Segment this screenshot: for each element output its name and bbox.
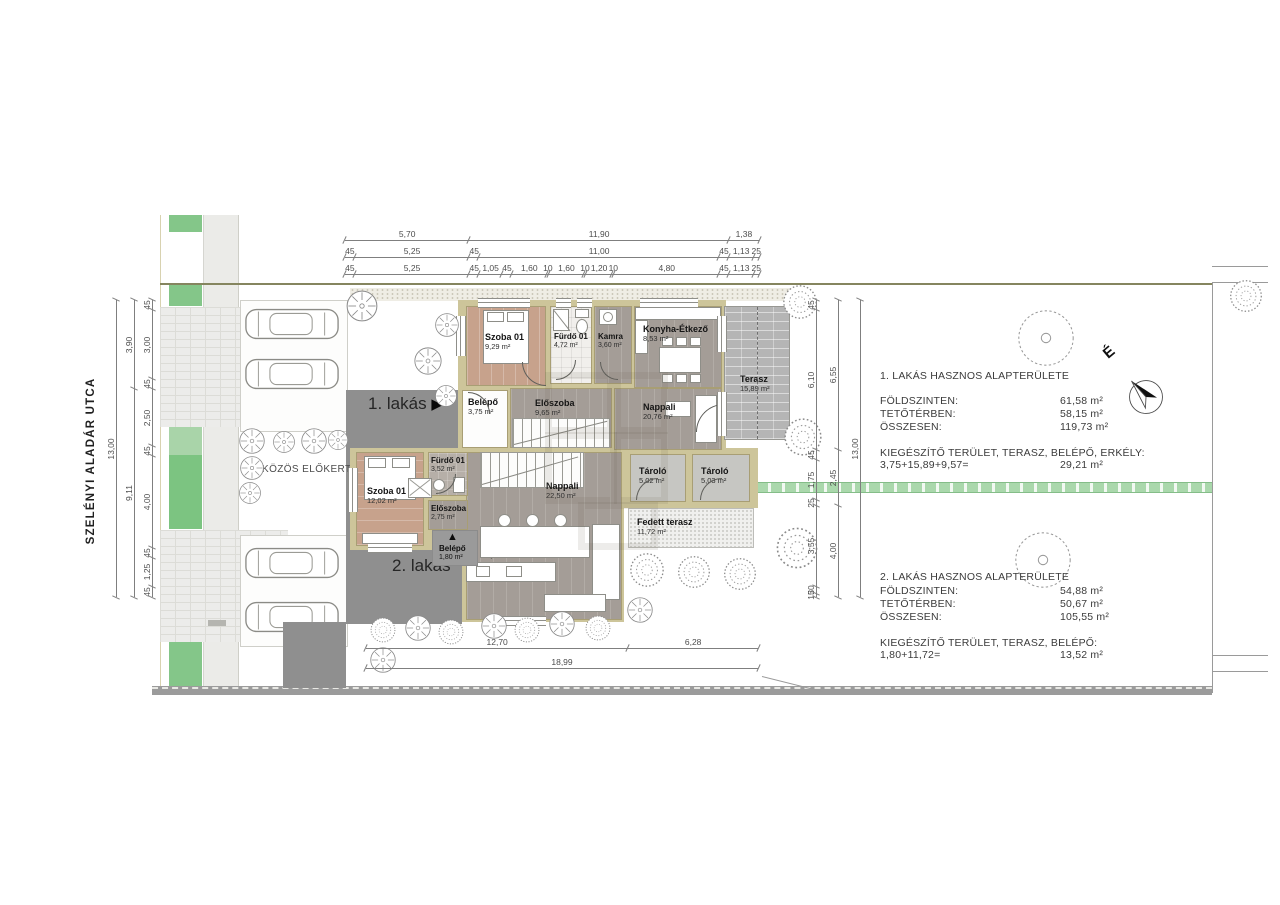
north-label: É <box>1100 343 1119 362</box>
dim-segment: 3,55 <box>804 506 817 587</box>
bush-icon <box>676 554 712 590</box>
window <box>577 298 592 308</box>
dim-segment: 45 <box>140 587 153 597</box>
boundary-tick <box>1212 266 1268 267</box>
grass-strip <box>169 427 202 455</box>
tree-icon <box>626 596 654 624</box>
sidewalk-mark <box>208 620 226 626</box>
washing-machine-door <box>603 312 613 322</box>
dim-segment: 6,55 <box>826 300 839 450</box>
bar-stool <box>498 514 511 527</box>
driveway <box>283 622 346 688</box>
north-arrow-icon <box>1120 371 1172 423</box>
pillow <box>507 312 524 322</box>
summary-title: 2. LAKÁS HASZNOS ALAPTERÜLETE <box>880 571 1160 583</box>
summary-extra-title: KIEGÉSZÍTŐ TERÜLET, TERASZ, BELÉPŐ, ERKÉ… <box>880 447 1160 459</box>
apartment1-label-text: 1. lakás <box>368 394 427 413</box>
dim-segment: 4,00 <box>826 506 839 597</box>
window <box>478 298 530 308</box>
dim-segment: 15 <box>804 594 817 597</box>
window <box>640 298 698 308</box>
dim-chain-top-3: 455,25451,05451,60101,60101,20104,80451,… <box>345 262 759 275</box>
dim-chain-left-outer: 13,00 <box>104 300 117 597</box>
dim-segment: 11,90 <box>469 228 729 241</box>
tree-icon <box>345 289 379 323</box>
dim-chain-left-inner: 453,00452,50454,00451,2545 <box>140 300 153 597</box>
dim-segment: 11,00 <box>479 245 719 258</box>
car-icon <box>244 543 340 583</box>
dim-chain-bottom-1: 12,706,28 <box>366 636 758 649</box>
dim-segment: 1,60 <box>549 262 584 275</box>
watermark <box>614 432 668 504</box>
watermark <box>614 372 668 434</box>
pillow <box>368 458 386 468</box>
bush-icon <box>1228 278 1264 314</box>
dim-segment: 3,00 <box>140 310 153 379</box>
terrace-apt1: Terasz15,89 m² <box>724 306 790 440</box>
apt1-area-summary: 1. LAKÁS HASZNOS ALAPTERÜLETE FÖLDSZINTE… <box>880 370 1160 472</box>
common-front-garden-label: KÖZÖS ELŐKERT <box>262 464 351 475</box>
shaft-box <box>408 478 432 498</box>
site-plan-canvas: SZELÉNYI ALADÁR UTCA 1. lakás ▶ 2. lakás… <box>0 0 1280 905</box>
watermark <box>545 432 617 504</box>
window <box>348 468 358 512</box>
dim-segment: 25 <box>754 245 759 258</box>
apartment1-label: 1. lakás ▶ <box>368 394 443 414</box>
street-name: SZELÉNYI ALADÁR UTCA <box>85 366 97 556</box>
kitchen-counter <box>635 307 721 320</box>
grass-strip <box>169 640 202 688</box>
dim-chain-right-inner: 456,10451,75253,553015 <box>804 300 817 597</box>
summary-row: FÖLDSZINTEN:61,58 m² <box>880 395 1160 408</box>
tree-icon <box>434 384 458 408</box>
dim-segment: 5,25 <box>355 262 470 275</box>
boundary-tick <box>1212 671 1268 672</box>
bar-stool <box>526 514 539 527</box>
boundary-tick <box>1212 655 1268 656</box>
dim-segment: 4,00 <box>140 456 153 547</box>
dim-segment: 2,45 <box>826 450 839 506</box>
car-icon <box>244 304 340 344</box>
bush-icon <box>628 551 666 589</box>
summary-extra-row: 1,80+11,72=13,52 m² <box>880 649 1160 662</box>
chair <box>676 374 687 383</box>
dim-segment: 18,99 <box>366 656 758 669</box>
window <box>717 316 727 352</box>
dim-segment: 2,50 <box>140 389 153 446</box>
pillow <box>392 458 410 468</box>
dim-chain-right-mid: 6,552,454,00 <box>826 300 839 597</box>
garden-tree-icon <box>1016 308 1076 368</box>
dim-segment: 1,60 <box>512 262 547 275</box>
grass-strip <box>169 455 202 529</box>
summary-row: ÖSSZESEN:119,73 m² <box>880 421 1160 434</box>
tree-icon <box>327 429 349 451</box>
grass-strip <box>169 215 202 232</box>
dim-segment: 25 <box>754 262 759 275</box>
summary-title: 1. LAKÁS HASZNOS ALAPTERÜLETE <box>880 370 1160 382</box>
summary-row: TETŐTÉRBEN:50,67 m² <box>880 598 1160 611</box>
dim-chain-top-2: 455,254511,00451,1325 <box>345 245 759 258</box>
summary-row: TETŐTÉRBEN:58,15 m² <box>880 408 1160 421</box>
dim-segment: 6,10 <box>804 310 817 449</box>
window <box>556 298 571 308</box>
bar-stool <box>554 514 567 527</box>
bush-icon <box>782 416 824 458</box>
summary-row: FÖLDSZINTEN:54,88 m² <box>880 585 1160 598</box>
room-belepo-apt2: ▲ Belépő1,80 m² <box>432 530 478 566</box>
tree-icon <box>548 610 576 638</box>
apt2-area-summary: 2. LAKÁS HASZNOS ALAPTERÜLETE FÖLDSZINTE… <box>880 571 1160 662</box>
plot-boundary-right <box>1212 283 1213 693</box>
summary-row: ÖSSZESEN:105,55 m² <box>880 611 1160 624</box>
room-szoba01-apt2: Szoba 0112,02 m² <box>356 452 424 546</box>
tree-icon <box>238 427 266 455</box>
window <box>717 392 727 436</box>
tree-icon <box>239 455 265 481</box>
dim-segment: 1,75 <box>804 460 817 500</box>
summary-extra-row: 3,75+15,89+9,57=29,21 m² <box>880 459 1160 472</box>
watermark <box>578 502 658 550</box>
dim-segment: 1,38 <box>729 228 759 241</box>
dim-segment: 1,05 <box>479 262 502 275</box>
tree-icon <box>300 427 328 455</box>
bush-icon <box>722 556 758 592</box>
tree-icon <box>434 312 460 338</box>
dim-segment: 1,13 <box>729 262 754 275</box>
pillow <box>487 312 504 322</box>
room-eloszoba-apt2: Előszoba2,75 m² <box>428 500 468 530</box>
tree-icon <box>238 481 262 505</box>
stove <box>506 566 522 577</box>
dim-chain-right-outer: 13,00 <box>848 300 861 597</box>
sink <box>476 566 490 577</box>
dim-segment: 6,28 <box>628 636 758 649</box>
dim-segment: 1,25 <box>140 558 153 587</box>
window <box>368 543 412 553</box>
chair <box>690 374 701 383</box>
dim-segment: 3,90 <box>122 300 135 389</box>
dim-chain-left-mid: 3,909,11 <box>122 300 135 597</box>
dim-chain-top-1: 5,7011,901,38 <box>345 228 759 241</box>
dining-table <box>659 347 701 373</box>
dim-segment: 5,70 <box>345 228 469 241</box>
car-icon <box>244 354 340 394</box>
dim-segment: 9,11 <box>122 389 135 597</box>
summary-extra-title: KIEGÉSZÍTŐ TERÜLET, TERASZ, BELÉPŐ: <box>880 637 1160 649</box>
dim-chain-bottom-2: 18,99 <box>366 656 758 669</box>
dim-segment: 4,80 <box>614 262 719 275</box>
tree-icon <box>413 346 443 376</box>
dim-segment: 13,00 <box>848 300 861 597</box>
dim-segment: 12,70 <box>366 636 628 649</box>
tree-icon <box>272 430 296 454</box>
watermark <box>545 372 614 434</box>
dim-segment: 1,13 <box>729 245 754 258</box>
toilet-tank <box>575 309 589 318</box>
dim-segment: 5,25 <box>355 245 470 258</box>
entry-arrow-icon: ▲ <box>447 531 458 543</box>
dim-segment: 13,00 <box>104 300 117 597</box>
kitchen-island <box>480 526 590 558</box>
grass-strip <box>169 285 202 306</box>
plot-boundary-top <box>160 283 1212 285</box>
